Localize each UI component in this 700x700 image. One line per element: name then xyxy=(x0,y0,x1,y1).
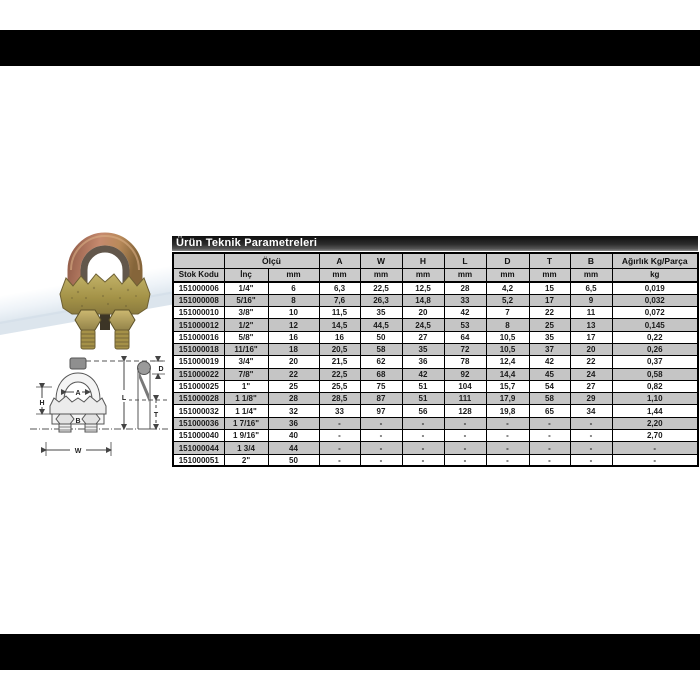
mm-unit-header: mm xyxy=(360,268,402,282)
bottom-letterbox-bar xyxy=(0,634,700,670)
table-cell: 42 xyxy=(444,307,486,319)
table-cell: 54 xyxy=(529,380,570,392)
table-cell: 22,5 xyxy=(319,368,360,380)
table-cell: 0,26 xyxy=(612,343,698,355)
table-cell: 34 xyxy=(570,405,612,417)
dim-label-d: D xyxy=(158,366,163,373)
table-cell: - xyxy=(402,454,444,466)
table-cell: 32 xyxy=(268,405,319,417)
table-cell: 22 xyxy=(268,368,319,380)
dim-column-header: T xyxy=(529,253,570,268)
table-cell: - xyxy=(444,454,486,466)
table-cell: 13 xyxy=(570,319,612,331)
table-cell: 5/8" xyxy=(224,331,268,343)
table-cell: - xyxy=(360,442,402,454)
table-cell: 151000010 xyxy=(173,307,224,319)
table-cell: 58 xyxy=(529,393,570,405)
table-cell: 7 xyxy=(486,307,529,319)
dim-label-l: L xyxy=(122,395,127,402)
table-cell: 151000008 xyxy=(173,294,224,306)
table-cell: - xyxy=(529,430,570,442)
table-cell: 28 xyxy=(268,393,319,405)
dim-column-header: D xyxy=(486,253,529,268)
table-cell: 37 xyxy=(529,343,570,355)
table-cell: 14,8 xyxy=(402,294,444,306)
table-cell: 33 xyxy=(319,405,360,417)
mm-unit-header: mm xyxy=(402,268,444,282)
table-cell: - xyxy=(529,442,570,454)
table-row: 1510000321 1/4"3233975612819,865341,44 xyxy=(173,405,698,417)
table-cell: 3/4" xyxy=(224,356,268,368)
wire-rope-clip-photo xyxy=(48,226,172,356)
table-cell: 17 xyxy=(570,331,612,343)
table-cell: 27 xyxy=(570,380,612,392)
table-cell: 10,5 xyxy=(486,343,529,355)
table-cell: - xyxy=(486,442,529,454)
dimension-drawing: A H B W L D T xyxy=(28,356,170,478)
table-cell: - xyxy=(486,417,529,429)
table-cell: 28,5 xyxy=(319,393,360,405)
table-cell: 1 7/16" xyxy=(224,417,268,429)
table-cell: 1 3/4 xyxy=(224,442,268,454)
table-cell: 151000051 xyxy=(173,454,224,466)
table-cell: 10,5 xyxy=(486,331,529,343)
table-cell: 42 xyxy=(529,356,570,368)
table-cell: 25 xyxy=(529,319,570,331)
dim-label-h: H xyxy=(39,400,44,407)
table-cell: - xyxy=(570,454,612,466)
table-cell: 19,8 xyxy=(486,405,529,417)
spec-table: ÖlçüAWHLDTBAğırlık Kg/ParçaStok Koduİnçm… xyxy=(172,252,699,467)
table-cell: 36 xyxy=(268,417,319,429)
table-cell: 2" xyxy=(224,454,268,466)
table-cell: 151000044 xyxy=(173,442,224,454)
table-cell: 36 xyxy=(402,356,444,368)
mm-unit-header: mm xyxy=(319,268,360,282)
table-cell: 7,6 xyxy=(319,294,360,306)
table-cell: 15 xyxy=(529,282,570,294)
table-cell: 151000032 xyxy=(173,405,224,417)
mm-unit-header: mm xyxy=(486,268,529,282)
table-cell: 16 xyxy=(319,331,360,343)
table-cell: - xyxy=(612,454,698,466)
table-cell: 28 xyxy=(444,282,486,294)
table-cell: 24 xyxy=(570,368,612,380)
table-cell: 42 xyxy=(402,368,444,380)
table-cell: 151000019 xyxy=(173,356,224,368)
table-cell: 26,3 xyxy=(360,294,402,306)
table-cell: 20 xyxy=(570,343,612,355)
table-cell: 1 9/16" xyxy=(224,430,268,442)
table-cell: 1/2" xyxy=(224,319,268,331)
table-cell: - xyxy=(486,430,529,442)
table-cell: 151000012 xyxy=(173,319,224,331)
table-cell: 17 xyxy=(529,294,570,306)
table-cell: 22 xyxy=(570,356,612,368)
stok-kodu-header: Stok Kodu xyxy=(173,268,224,282)
table-cell: 3/8" xyxy=(224,307,268,319)
table-cell: 51 xyxy=(402,393,444,405)
table-cell: 1 1/8" xyxy=(224,393,268,405)
table-cell: - xyxy=(444,442,486,454)
table-cell: 64 xyxy=(444,331,486,343)
table-cell: 24,5 xyxy=(402,319,444,331)
table-cell: 1" xyxy=(224,380,268,392)
table-cell: 75 xyxy=(360,380,402,392)
table-cell: 9 xyxy=(570,294,612,306)
table-cell: 92 xyxy=(444,368,486,380)
table-row: 1510000251"2525,5755110415,754270,82 xyxy=(173,380,698,392)
table-cell: 151000036 xyxy=(173,417,224,429)
table-cell: 7/8" xyxy=(224,368,268,380)
table-cell: 5/16" xyxy=(224,294,268,306)
table-cell: - xyxy=(360,430,402,442)
table-cell: 4,2 xyxy=(486,282,529,294)
table-cell: 151000016 xyxy=(173,331,224,343)
table-cell: - xyxy=(402,430,444,442)
table-cell: 0,145 xyxy=(612,319,698,331)
table-cell: 0,072 xyxy=(612,307,698,319)
table-cell: 17,9 xyxy=(486,393,529,405)
table-cell: 11,5 xyxy=(319,307,360,319)
table-row: 1510000103/8"1011,5352042722110,072 xyxy=(173,307,698,319)
table-cell: - xyxy=(319,417,360,429)
table-row: 1510000401 9/16"40-------2,70 xyxy=(173,430,698,442)
table-cell: - xyxy=(444,430,486,442)
table-cell: - xyxy=(570,442,612,454)
table-cell: - xyxy=(529,454,570,466)
table-cell: 11/16" xyxy=(224,343,268,355)
table-cell: 151000028 xyxy=(173,393,224,405)
table-cell: 151000022 xyxy=(173,368,224,380)
mm-unit-header: mm xyxy=(529,268,570,282)
table-cell: - xyxy=(570,417,612,429)
corner-cell xyxy=(173,253,224,268)
table-cell: - xyxy=(444,417,486,429)
table-cell: - xyxy=(319,454,360,466)
table-cell: - xyxy=(360,417,402,429)
table-row: 1510000061/4"66,322,512,5284,2156,50,019 xyxy=(173,282,698,294)
table-cell: 20 xyxy=(268,356,319,368)
product-visual-panel: A H B W L D T xyxy=(0,226,172,478)
table-cell: 72 xyxy=(444,343,486,355)
table-cell: 8 xyxy=(486,319,529,331)
table-row: 1510000512"50-------- xyxy=(173,454,698,466)
table-cell: 1/4" xyxy=(224,282,268,294)
table-cell: 97 xyxy=(360,405,402,417)
table-cell: 65 xyxy=(529,405,570,417)
table-cell: 0,58 xyxy=(612,368,698,380)
dim-label-w: W xyxy=(75,448,82,455)
table-cell: - xyxy=(402,417,444,429)
top-letterbox-bar xyxy=(0,30,700,66)
table-row: 1510000441 3/444-------- xyxy=(173,442,698,454)
table-row: 1510000227/8"2222,568429214,445240,58 xyxy=(173,368,698,380)
table-cell: 1 1/4" xyxy=(224,405,268,417)
table-cell: - xyxy=(360,454,402,466)
table-cell: 0,032 xyxy=(612,294,698,306)
table-title: Ürün Teknik Parametreleri xyxy=(172,236,698,251)
table-cell: 2,70 xyxy=(612,430,698,442)
table-cell: 151000006 xyxy=(173,282,224,294)
table-cell: 27 xyxy=(402,331,444,343)
table-cell: 14,4 xyxy=(486,368,529,380)
table-cell: 56 xyxy=(402,405,444,417)
table-cell: - xyxy=(529,417,570,429)
dim-column-header: L xyxy=(444,253,486,268)
table-row: 1510000165/8"161650276410,535170,22 xyxy=(173,331,698,343)
table-cell: 35 xyxy=(529,331,570,343)
table-cell: - xyxy=(570,430,612,442)
table-cell: 20 xyxy=(402,307,444,319)
table-cell: 15,7 xyxy=(486,380,529,392)
table-cell: 8 xyxy=(268,294,319,306)
kg-unit-header: kg xyxy=(612,268,698,282)
table-cell: 44 xyxy=(268,442,319,454)
table-cell: 53 xyxy=(444,319,486,331)
table-cell: 0,37 xyxy=(612,356,698,368)
table-cell: 0,019 xyxy=(612,282,698,294)
table-row: 15100001811/16"1820,558357210,537200,26 xyxy=(173,343,698,355)
table-cell: 51 xyxy=(402,380,444,392)
table-cell: 50 xyxy=(268,454,319,466)
table-cell: 62 xyxy=(360,356,402,368)
table-cell: 12,5 xyxy=(402,282,444,294)
table-cell: 12,4 xyxy=(486,356,529,368)
table-cell: 20,5 xyxy=(319,343,360,355)
dim-column-header: W xyxy=(360,253,402,268)
mm-unit-header: mm xyxy=(268,268,319,282)
table-cell: 11 xyxy=(570,307,612,319)
table-cell: 18 xyxy=(268,343,319,355)
table-row: 1510000121/2"1214,544,524,553825130,145 xyxy=(173,319,698,331)
spec-table-area: Ürün Teknik Parametreleri ÖlçüAWHLDTBAğı… xyxy=(172,236,698,467)
table-cell: - xyxy=(319,442,360,454)
table-cell: 40 xyxy=(268,430,319,442)
dim-column-header: H xyxy=(402,253,444,268)
dim-label-a: A xyxy=(75,390,80,397)
table-cell: 35 xyxy=(402,343,444,355)
table-cell: - xyxy=(612,442,698,454)
table-cell: 6,3 xyxy=(319,282,360,294)
table-row: 1510000281 1/8"2828,5875111117,958291,10 xyxy=(173,393,698,405)
mm-unit-header: mm xyxy=(570,268,612,282)
table-cell: 44,5 xyxy=(360,319,402,331)
table-cell: 22,5 xyxy=(360,282,402,294)
table-cell: 5,2 xyxy=(486,294,529,306)
table-cell: 0,82 xyxy=(612,380,698,392)
dim-column-header: A xyxy=(319,253,360,268)
table-cell: 1,10 xyxy=(612,393,698,405)
table-cell: 25,5 xyxy=(319,380,360,392)
table-cell: 1,44 xyxy=(612,405,698,417)
table-cell: 25 xyxy=(268,380,319,392)
inc-header: İnç xyxy=(224,268,268,282)
table-cell: 16 xyxy=(268,331,319,343)
mm-unit-header: mm xyxy=(444,268,486,282)
table-cell: 33 xyxy=(444,294,486,306)
table-cell: 6 xyxy=(268,282,319,294)
weight-group-header: Ağırlık Kg/Parça xyxy=(612,253,698,268)
table-cell: - xyxy=(319,430,360,442)
table-cell: 111 xyxy=(444,393,486,405)
table-cell: 10 xyxy=(268,307,319,319)
table-cell: 104 xyxy=(444,380,486,392)
table-cell: 22 xyxy=(529,307,570,319)
table-cell: 35 xyxy=(360,307,402,319)
table-cell: 50 xyxy=(360,331,402,343)
table-cell: 78 xyxy=(444,356,486,368)
table-cell: - xyxy=(402,442,444,454)
table-cell: 21,5 xyxy=(319,356,360,368)
table-cell: 151000018 xyxy=(173,343,224,355)
table-cell: 0,22 xyxy=(612,331,698,343)
table-cell: 12 xyxy=(268,319,319,331)
table-cell: 2,20 xyxy=(612,417,698,429)
olcu-group-header: Ölçü xyxy=(224,253,319,268)
table-cell: 45 xyxy=(529,368,570,380)
table-cell: 58 xyxy=(360,343,402,355)
table-cell: 29 xyxy=(570,393,612,405)
dim-label-t: T xyxy=(154,412,159,419)
table-cell: 151000025 xyxy=(173,380,224,392)
table-row: 1510000193/4"2021,562367812,442220,37 xyxy=(173,356,698,368)
table-row: 1510000361 7/16"36-------2,20 xyxy=(173,417,698,429)
table-cell: 151000040 xyxy=(173,430,224,442)
table-cell: 68 xyxy=(360,368,402,380)
table-cell: 6,5 xyxy=(570,282,612,294)
table-cell: 87 xyxy=(360,393,402,405)
table-cell: - xyxy=(486,454,529,466)
dim-column-header: B xyxy=(570,253,612,268)
table-row: 1510000085/16"87,626,314,8335,21790,032 xyxy=(173,294,698,306)
table-cell: 14,5 xyxy=(319,319,360,331)
dim-label-b: B xyxy=(75,418,80,425)
table-cell: 128 xyxy=(444,405,486,417)
